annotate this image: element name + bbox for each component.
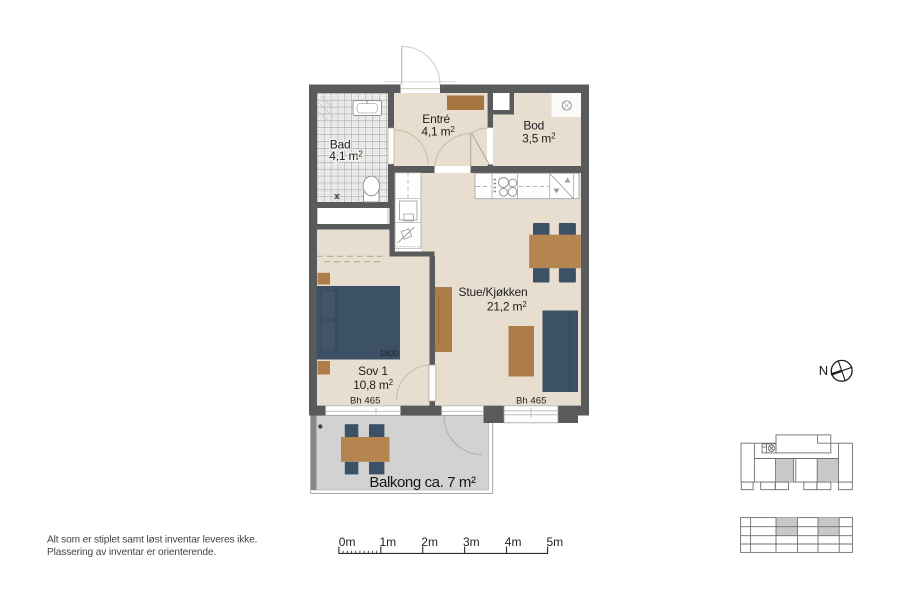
svg-text:Bh 465: Bh 465 [350, 396, 380, 407]
svg-text:N: N [819, 363, 828, 378]
svg-text:4m: 4m [505, 535, 522, 549]
svg-text:3m: 3m [463, 535, 480, 549]
svg-text:3,5 m2: 3,5 m2 [522, 131, 556, 145]
svg-text:4,1 m2: 4,1 m2 [329, 149, 363, 163]
svg-text:4,1 m2: 4,1 m2 [421, 125, 455, 139]
svg-text:Alt som er stiplet samt løst i: Alt som er stiplet samt løst inventar le… [47, 535, 257, 546]
svg-text:1m: 1m [380, 535, 397, 549]
svg-text:1800: 1800 [380, 348, 399, 358]
svg-text:2m: 2m [421, 535, 438, 549]
svg-text:Sov 1: Sov 1 [358, 364, 388, 378]
svg-text:Stue/Kjøkken: Stue/Kjøkken [459, 285, 528, 299]
svg-text:21,2 m2: 21,2 m2 [487, 299, 528, 313]
svg-text:Plassering av inventar er orie: Plassering av inventar er orienterende. [47, 547, 216, 558]
svg-text:Bh 465: Bh 465 [516, 396, 546, 407]
svg-text:Balkong ca. 7 m²: Balkong ca. 7 m² [369, 474, 476, 491]
svg-text:0m: 0m [339, 535, 356, 549]
svg-text:5m: 5m [547, 535, 564, 549]
svg-text:10,8 m2: 10,8 m2 [353, 378, 394, 392]
